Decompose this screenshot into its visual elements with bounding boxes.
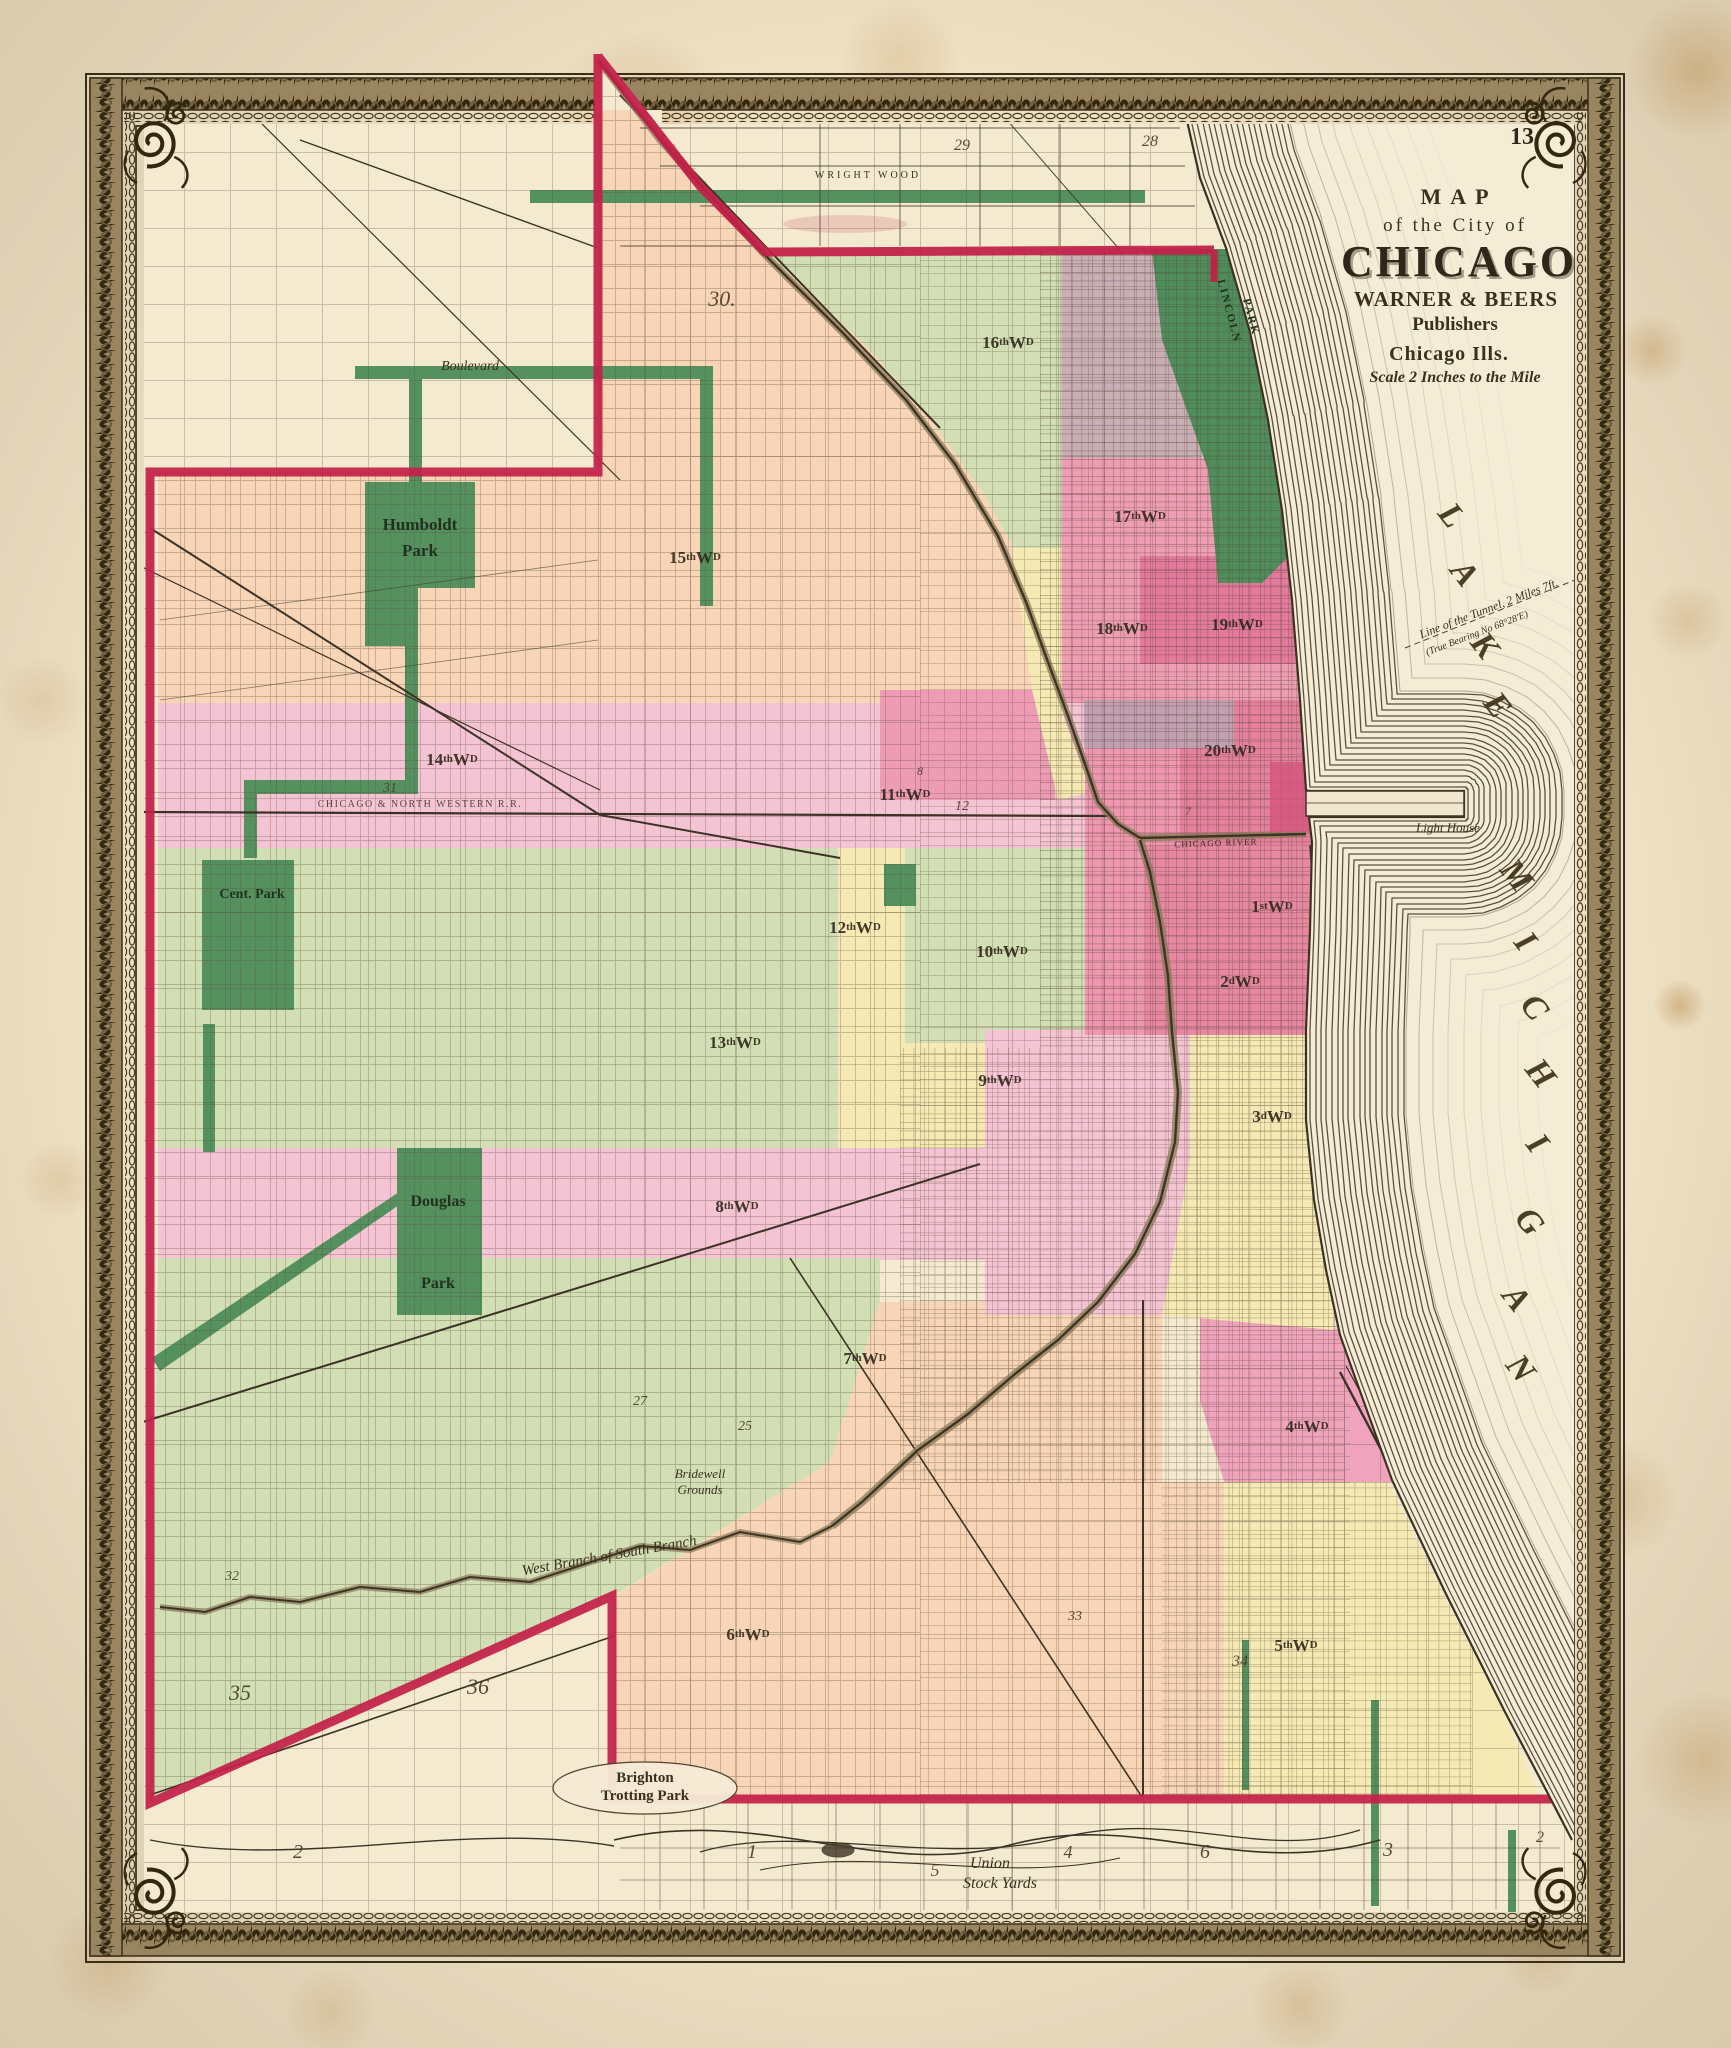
svg-text:4: 4 [1064,1842,1073,1862]
svg-text:Park: Park [421,1275,455,1292]
svg-text:2: 2 [1536,1829,1544,1846]
svg-text:Grounds: Grounds [677,1482,722,1497]
svg-text:Brighton: Brighton [616,1770,674,1786]
svg-text:Boulevard: Boulevard [441,359,500,374]
svg-text:27: 27 [633,1394,648,1409]
svg-text:WRIGHT WOOD: WRIGHT WOOD [815,170,921,181]
svg-text:Park: Park [402,541,438,560]
svg-text:1: 1 [747,1841,757,1863]
svg-text:34: 34 [1231,1653,1248,1670]
svg-text:MAP: MAP [1420,184,1497,209]
svg-text:3: 3 [1382,1839,1393,1861]
svg-text:Chicago Ills.: Chicago Ills. [1389,343,1509,365]
svg-text:32: 32 [224,1569,239,1584]
svg-text:Stock Yards: Stock Yards [963,1875,1037,1892]
svg-text:36: 36 [466,1674,489,1699]
svg-text:Cent. Park: Cent. Park [219,887,285,902]
svg-text:CHICAGO: CHICAGO [1341,237,1577,286]
svg-text:of the City of: of the City of [1383,215,1527,236]
svg-text:8: 8 [917,764,923,778]
svg-text:12: 12 [955,799,969,814]
svg-text:25: 25 [738,1419,752,1434]
svg-text:Trotting Park: Trotting Park [601,1788,690,1804]
svg-text:Bridewell: Bridewell [675,1466,726,1481]
svg-text:2: 2 [293,1841,303,1863]
svg-text:31: 31 [382,781,397,796]
svg-text:6: 6 [1200,1841,1210,1863]
svg-text:30.: 30. [707,286,736,311]
svg-text:Union: Union [970,1855,1010,1872]
svg-text:CHICAGO & NORTH WESTERN R.R.: CHICAGO & NORTH WESTERN R.R. [318,799,523,810]
svg-text:Scale 2 Inches to the Mile: Scale 2 Inches to the Mile [1369,369,1540,386]
svg-text:29: 29 [954,137,970,154]
svg-text:Publishers: Publishers [1412,314,1498,335]
svg-text:28: 28 [1142,133,1158,150]
svg-text:35: 35 [228,1680,251,1705]
svg-text:7: 7 [1185,804,1192,818]
svg-text:5: 5 [931,1860,940,1880]
svg-text:Light House: Light House [1415,820,1480,835]
svg-text:Douglas: Douglas [410,1193,465,1210]
svg-text:13: 13 [1510,124,1534,150]
svg-text:Humboldt: Humboldt [383,515,458,534]
svg-text:33: 33 [1067,1609,1082,1624]
svg-text:WARNER & BEERS: WARNER & BEERS [1354,287,1558,311]
